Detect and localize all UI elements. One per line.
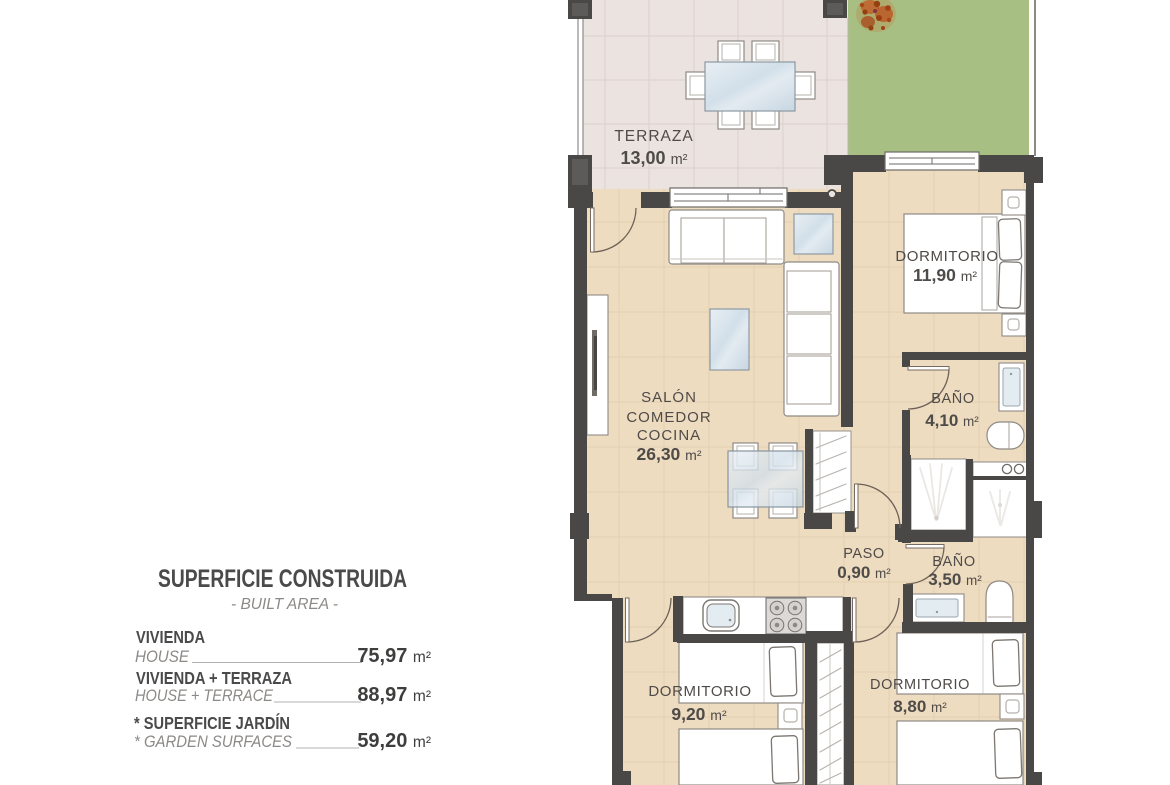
svg-text:BAÑO: BAÑO [931,390,975,407]
svg-text:DORMITORIO: DORMITORIO [870,677,970,693]
svg-text:75,97 m²: 75,97 m² [357,645,431,667]
svg-text:11,90 m²: 11,90 m² [913,265,977,285]
svg-text:BAÑO: BAÑO [932,553,976,570]
svg-text:* SUPERFICIE JARDÍN: * SUPERFICIE JARDÍN [134,712,290,733]
svg-text:HOUSE + TERRACE: HOUSE + TERRACE [135,686,274,705]
svg-text:COMEDOR: COMEDOR [626,409,711,426]
svg-text:0,90 m²: 0,90 m² [837,563,891,582]
svg-text:4,10 m²: 4,10 m² [925,411,979,430]
svg-text:59,20 m²: 59,20 m² [357,730,431,752]
svg-text:SALÓN: SALÓN [641,389,697,406]
svg-text:- BUILT AREA -: - BUILT AREA - [231,596,338,613]
svg-text:COCINA: COCINA [637,427,701,444]
svg-text:SUPERFICIE CONSTRUIDA: SUPERFICIE CONSTRUIDA [158,565,407,593]
svg-text:3,50 m²: 3,50 m² [928,570,982,589]
svg-text:TERRAZA: TERRAZA [614,128,693,145]
svg-text:88,97 m²: 88,97 m² [357,684,431,706]
svg-text:26,30 m²: 26,30 m² [637,444,702,464]
svg-text:VIVIENDA: VIVIENDA [136,627,205,647]
svg-text:9,20 m²: 9,20 m² [671,704,727,724]
svg-text:DORMITORIO: DORMITORIO [648,683,751,700]
svg-text:HOUSE: HOUSE [135,647,190,666]
svg-text:PASO: PASO [843,546,885,562]
svg-text:8,80 m²: 8,80 m² [893,697,947,716]
svg-text:DORMITORIO: DORMITORIO [895,248,998,265]
svg-text:VIVIENDA + TERRAZA: VIVIENDA + TERRAZA [136,668,292,688]
svg-text:* GARDEN SURFACES: * GARDEN SURFACES [134,732,293,751]
